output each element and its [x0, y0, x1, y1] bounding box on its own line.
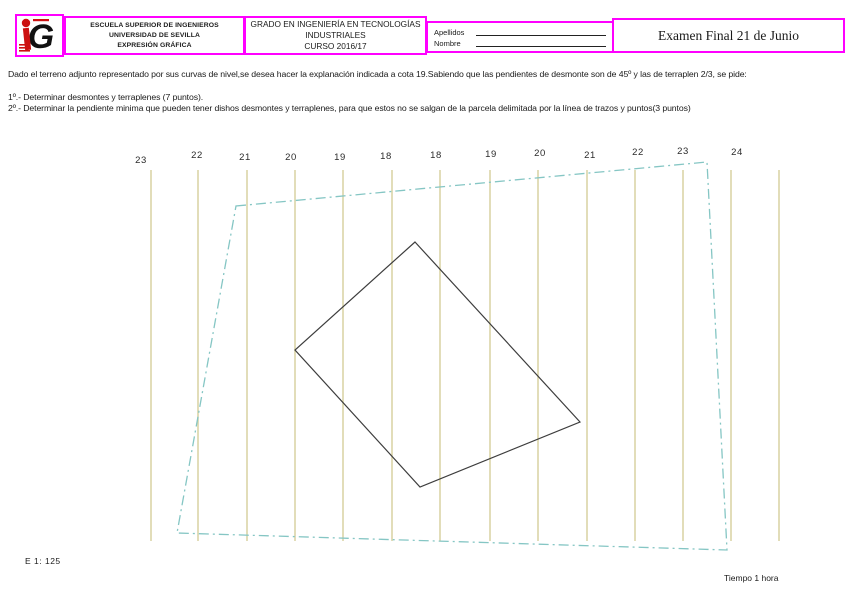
contour-elevation-label: 24 [731, 147, 743, 158]
contour-elevation-label: 18 [380, 151, 392, 162]
contour-elevation-label: 21 [584, 150, 596, 161]
parcel-boundary-dashdot [177, 162, 727, 550]
contour-elevation-label: 20 [534, 148, 546, 159]
contour-elevation-label: 22 [632, 147, 644, 158]
scale-note: E 1: 125 [25, 556, 61, 566]
contour-elevation-label: 18 [430, 150, 442, 161]
contour-elevation-label: 23 [677, 146, 689, 157]
terrain-drawing: 23222120191818192021222324 [0, 0, 848, 600]
contour-elevation-label: 23 [135, 155, 147, 166]
contour-elevation-label: 21 [239, 152, 251, 163]
contour-elevation-label: 20 [285, 152, 297, 163]
time-note: Tiempo 1 hora [724, 573, 779, 583]
contour-elevation-label: 19 [334, 152, 346, 163]
contour-elevation-label: 19 [485, 149, 497, 160]
contour-elevation-label: 22 [191, 150, 203, 161]
